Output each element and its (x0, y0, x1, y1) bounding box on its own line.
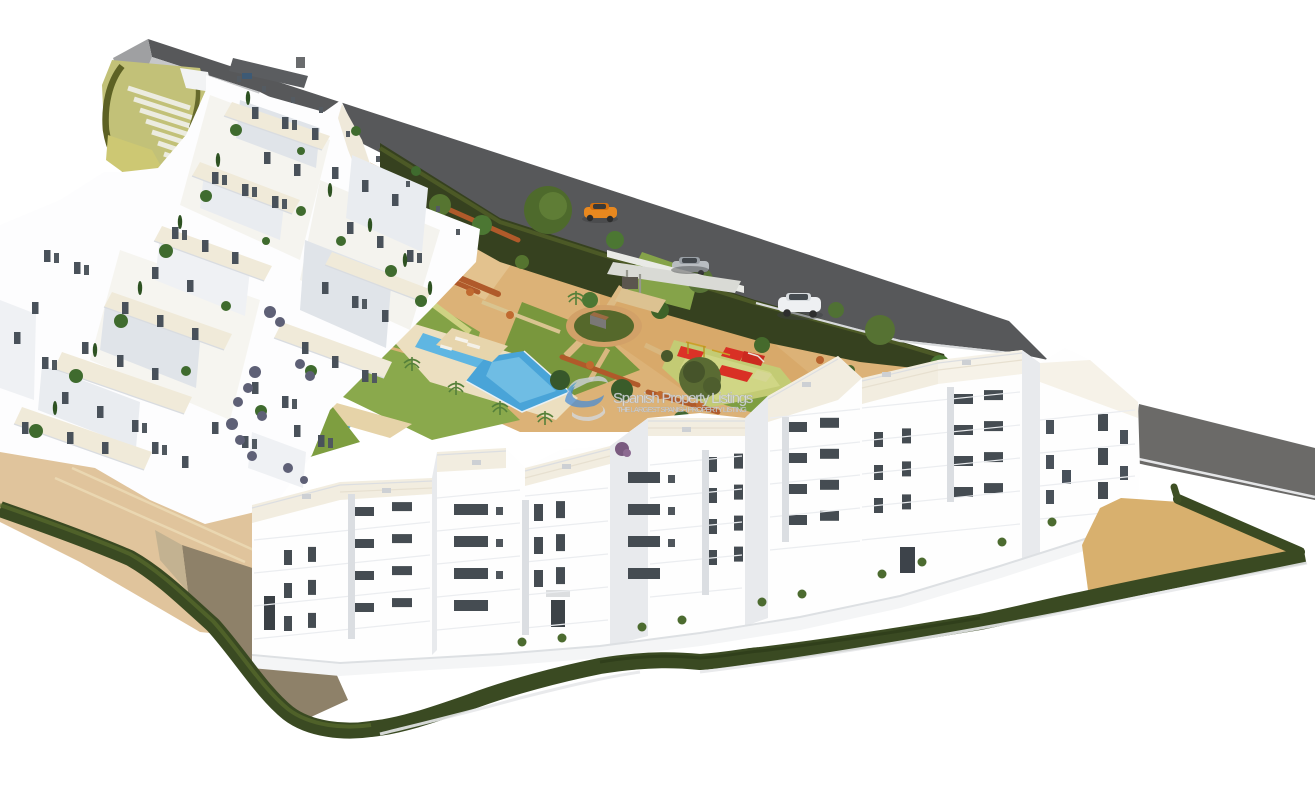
svg-text:THE LARGEST SPANISH PROPERTY L: THE LARGEST SPANISH PROPERTY LISTING (617, 405, 747, 414)
